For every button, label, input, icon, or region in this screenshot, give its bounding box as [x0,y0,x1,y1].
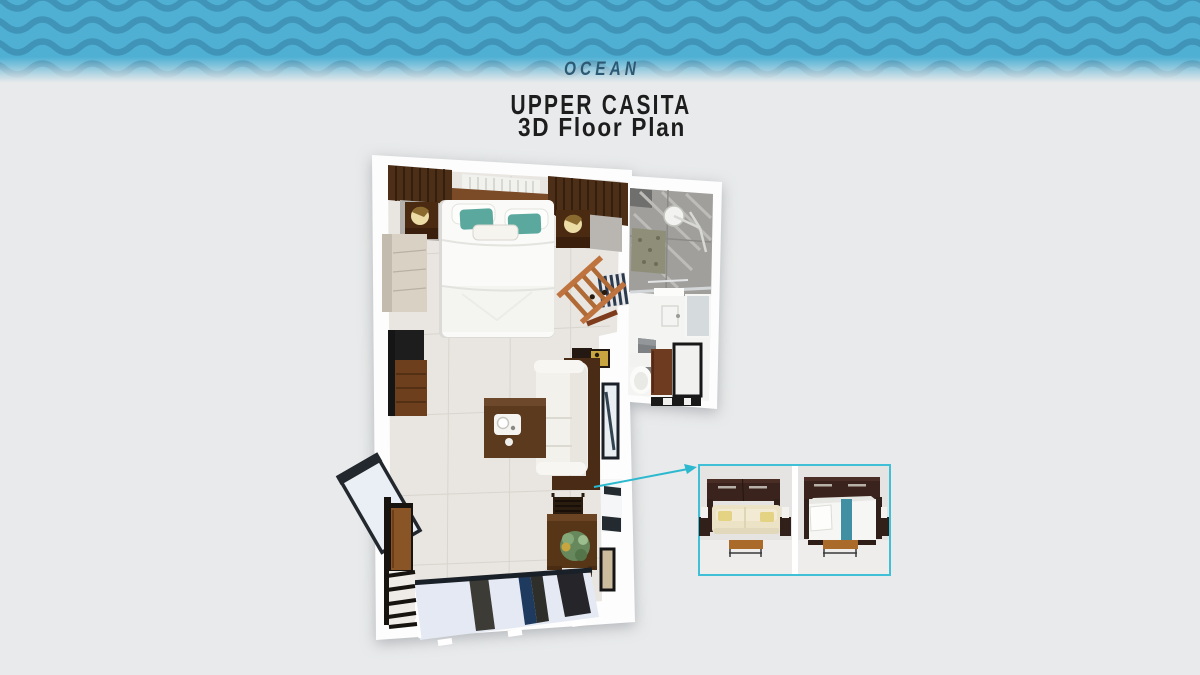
svg-text:OCEAN: OCEAN [564,59,640,80]
svg-text:3D Floor Plan: 3D Floor Plan [518,112,686,142]
